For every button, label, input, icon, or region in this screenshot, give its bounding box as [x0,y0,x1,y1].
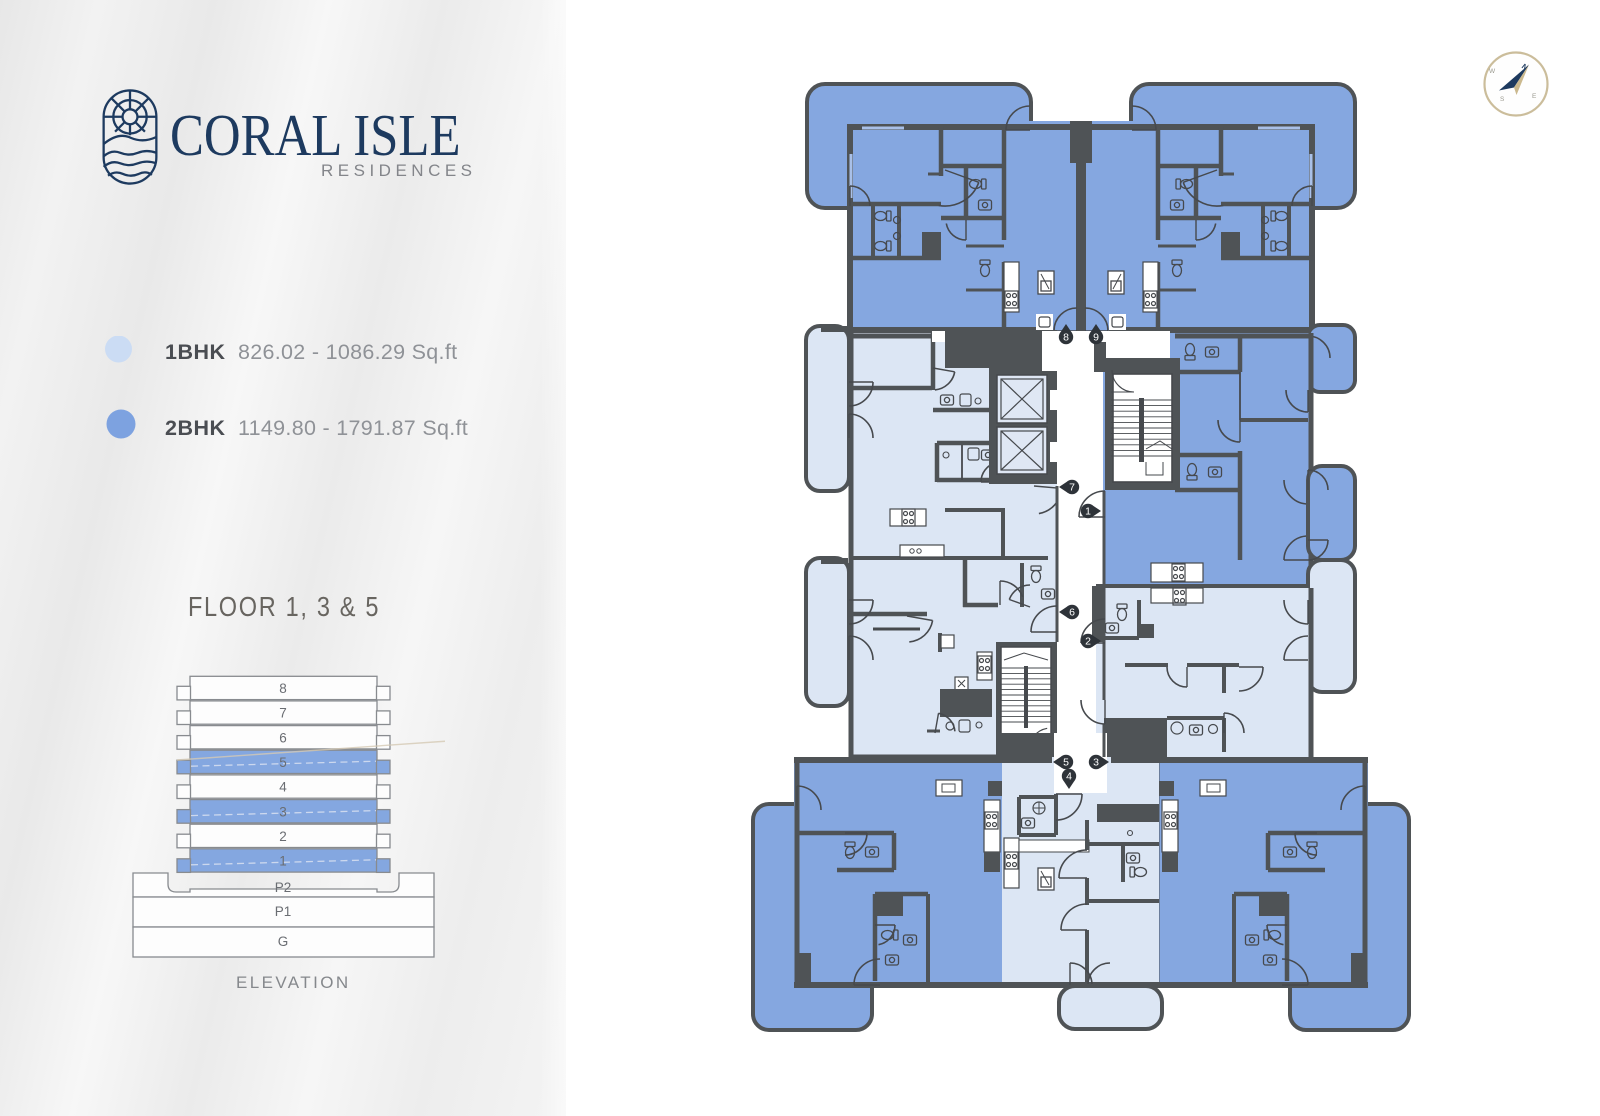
svg-text:8: 8 [1063,332,1069,344]
svg-text:1: 1 [1085,506,1091,518]
svg-text:3: 3 [1093,757,1099,769]
svg-text:6: 6 [1069,607,1075,619]
svg-text:2: 2 [1085,636,1091,648]
svg-text:7: 7 [1069,482,1075,494]
svg-text:9: 9 [1093,332,1099,344]
svg-text:4: 4 [1066,771,1072,783]
svg-text:5: 5 [1063,757,1069,769]
